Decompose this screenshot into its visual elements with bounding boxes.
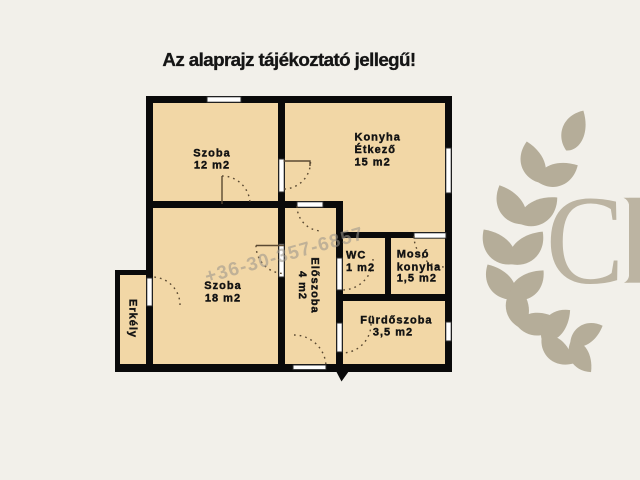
svg-text:3,5 m2: 3,5 m2 bbox=[373, 326, 413, 338]
svg-text:Erkély: Erkély bbox=[127, 299, 139, 338]
svg-text:Mosó: Mosó bbox=[397, 249, 430, 261]
svg-text:1,5 m2: 1,5 m2 bbox=[397, 272, 437, 284]
svg-text:Konyha: Konyha bbox=[355, 132, 401, 144]
svg-text:18 m2: 18 m2 bbox=[205, 293, 241, 305]
svg-text:WC: WC bbox=[346, 250, 366, 262]
svg-text:12 m2: 12 m2 bbox=[194, 159, 230, 171]
svg-text:Étkező: Étkező bbox=[355, 143, 396, 156]
svg-text:Fürdőszoba: Fürdőszoba bbox=[360, 314, 432, 326]
svg-text:15 m2: 15 m2 bbox=[355, 157, 391, 169]
svg-text:Előszoba: Előszoba bbox=[309, 257, 321, 313]
svg-text:Szoba: Szoba bbox=[193, 147, 230, 159]
svg-text:4 m2: 4 m2 bbox=[296, 271, 308, 300]
svg-text:Az alaprajz tájékoztató jelleg: Az alaprajz tájékoztató jellegű! bbox=[162, 49, 415, 70]
svg-text:C: C bbox=[546, 171, 624, 312]
svg-text:1 m2: 1 m2 bbox=[346, 262, 375, 274]
